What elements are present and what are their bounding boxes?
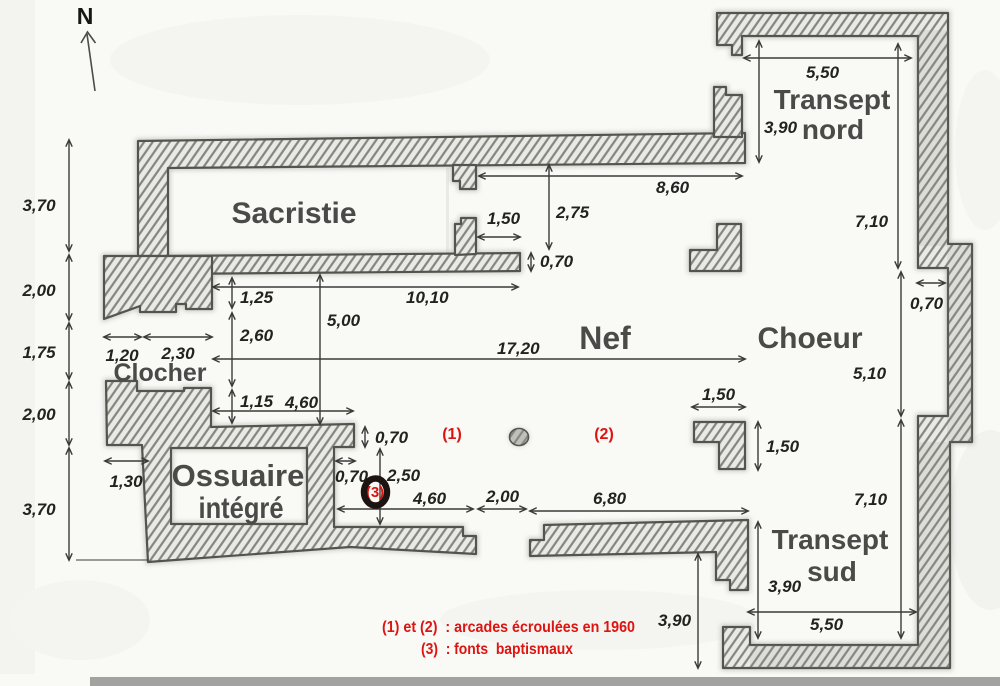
svg-text:nord: nord xyxy=(802,114,864,145)
svg-text:Choeur: Choeur xyxy=(758,322,863,355)
svg-text:Transept: Transept xyxy=(774,84,891,115)
svg-text:6,80: 6,80 xyxy=(593,489,627,508)
svg-text:2,00: 2,00 xyxy=(21,405,56,424)
svg-text:(2): (2) xyxy=(594,426,614,443)
svg-text:8,60: 8,60 xyxy=(656,178,690,197)
svg-text:(1): (1) xyxy=(442,426,462,443)
svg-text:5,00: 5,00 xyxy=(327,311,361,330)
svg-text:3,70: 3,70 xyxy=(22,500,56,519)
svg-text:7,10: 7,10 xyxy=(854,490,888,509)
svg-text:2,75: 2,75 xyxy=(555,203,590,222)
svg-text:Transept: Transept xyxy=(772,524,889,555)
svg-text:2,00: 2,00 xyxy=(21,281,56,300)
svg-text:0,70: 0,70 xyxy=(910,294,944,313)
svg-text:1,15: 1,15 xyxy=(240,392,274,411)
svg-text:sud: sud xyxy=(807,556,857,587)
svg-text:0,70: 0,70 xyxy=(375,428,409,447)
svg-text:1,50: 1,50 xyxy=(766,437,800,456)
svg-text:1,50: 1,50 xyxy=(487,209,521,228)
svg-text:(3) : fonts baptismaux: (3) : fonts baptismaux xyxy=(421,641,573,658)
svg-text:Nef: Nef xyxy=(579,320,631,356)
svg-text:1,75: 1,75 xyxy=(22,343,56,362)
svg-text:5,50: 5,50 xyxy=(806,63,840,82)
svg-text:0,70: 0,70 xyxy=(540,252,574,271)
svg-text:5,10: 5,10 xyxy=(853,364,887,383)
svg-text:4,60: 4,60 xyxy=(412,489,447,508)
svg-text:17,20: 17,20 xyxy=(497,339,540,358)
svg-text:5,50: 5,50 xyxy=(810,615,844,634)
svg-text:3,90: 3,90 xyxy=(658,611,692,630)
svg-text:7,10: 7,10 xyxy=(855,212,889,231)
svg-text:4,60: 4,60 xyxy=(284,393,319,412)
svg-text:2,50: 2,50 xyxy=(386,466,421,485)
svg-text:3,90: 3,90 xyxy=(768,577,802,596)
svg-text:1,50: 1,50 xyxy=(702,385,736,404)
svg-text:Clocher: Clocher xyxy=(113,359,206,387)
svg-text:N: N xyxy=(77,3,94,29)
svg-text:intégré: intégré xyxy=(199,492,284,525)
svg-text:2,60: 2,60 xyxy=(239,326,274,345)
svg-text:2,00: 2,00 xyxy=(485,487,520,506)
svg-text:10,10: 10,10 xyxy=(406,288,449,307)
svg-text:(1) et (2) : arcades écroulée: (1) et (2) : arcades écroulées en 1960 xyxy=(382,619,635,636)
svg-text:1,25: 1,25 xyxy=(240,288,274,307)
svg-text:Sacristie: Sacristie xyxy=(231,197,356,230)
svg-text:3,70: 3,70 xyxy=(22,196,56,215)
svg-text:1,30: 1,30 xyxy=(109,472,143,491)
svg-text:3,90: 3,90 xyxy=(764,118,798,137)
svg-text:Ossuaire: Ossuaire xyxy=(172,458,305,493)
